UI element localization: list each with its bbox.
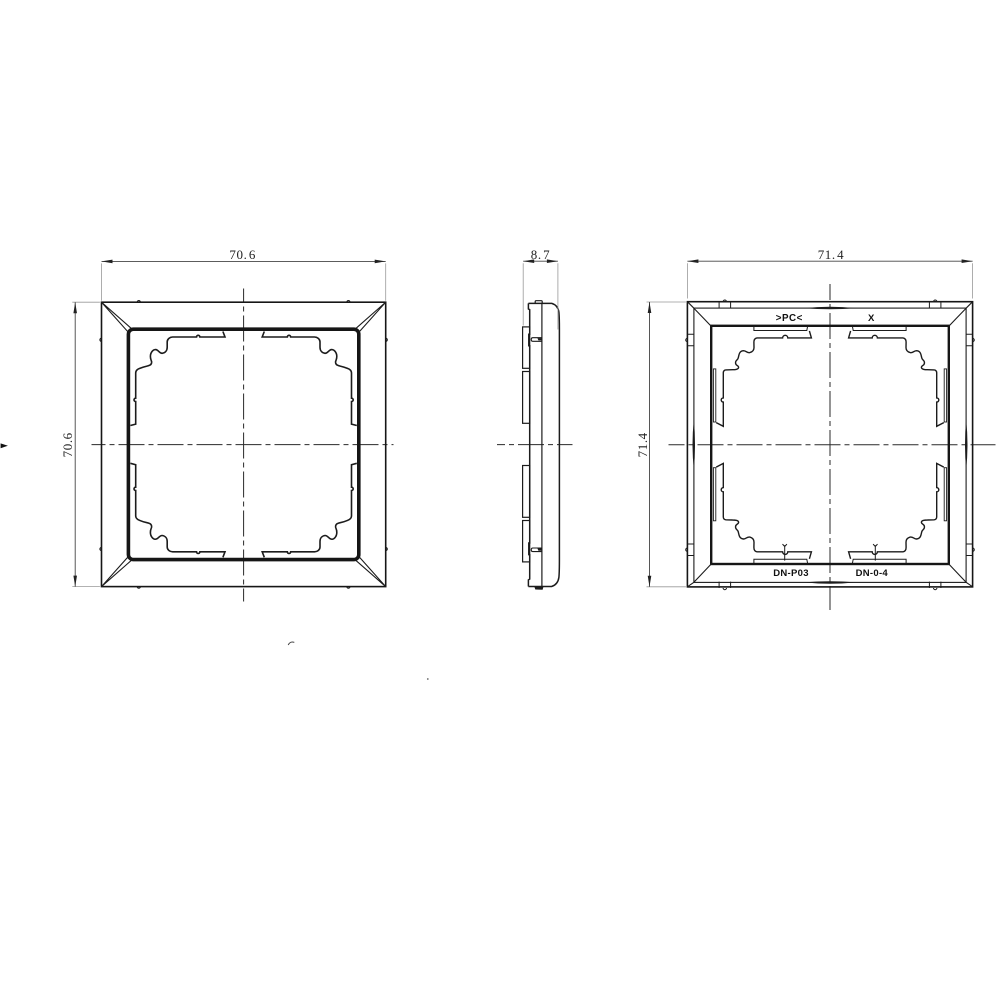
svg-text:71.4: 71.4 bbox=[818, 247, 845, 262]
svg-text:71.4: 71.4 bbox=[635, 432, 650, 457]
svg-text:70.6: 70.6 bbox=[60, 432, 75, 457]
svg-text:DN-0-4: DN-0-4 bbox=[856, 568, 889, 579]
svg-text:X: X bbox=[868, 313, 875, 324]
svg-text:DN-P03: DN-P03 bbox=[773, 568, 809, 579]
svg-text:8.7: 8.7 bbox=[531, 247, 550, 262]
svg-text:>PC<: >PC< bbox=[776, 313, 803, 324]
svg-text:70.6: 70.6 bbox=[229, 247, 256, 262]
